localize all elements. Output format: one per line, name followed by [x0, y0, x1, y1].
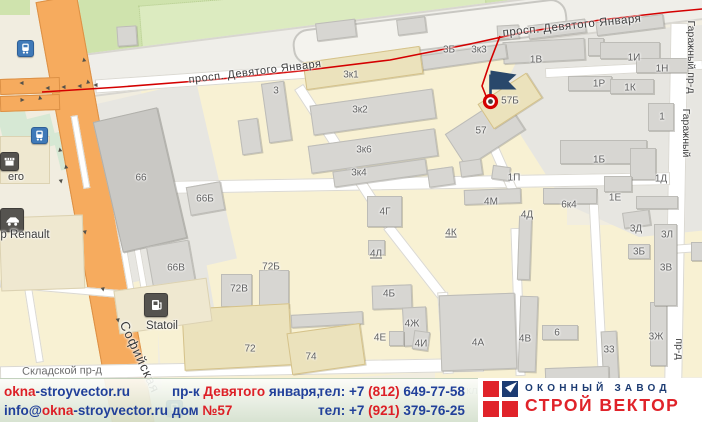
building [636, 196, 678, 209]
logo-text: ОКОННЫЙ ЗАВОД СТРОЙ ВЕКТОР [525, 382, 679, 415]
building-label: 1Е [609, 193, 621, 204]
building-label: 72В [230, 284, 248, 295]
text-segment: (812) [368, 384, 400, 399]
text-segment: дом [172, 403, 202, 418]
building-label: 3 [273, 86, 279, 97]
text-segment: 379-76-25 [400, 403, 465, 418]
building-label: 3к2 [352, 105, 368, 116]
lane-arrow-icon: ▲ [45, 85, 52, 92]
footer-bar: okna-stroyvector.ru info@okna-stroyvecto… [0, 378, 702, 422]
text-segment: okna [4, 384, 36, 399]
building [502, 38, 585, 64]
building-label: 3к6 [356, 145, 372, 156]
building-label: 1Р [593, 79, 605, 90]
street-label: Гаражный пр-д [685, 21, 697, 94]
building-label: 4И [415, 339, 428, 350]
building-label: 1К [624, 83, 635, 94]
text-segment: (921) [368, 403, 400, 418]
text-segment: okna [42, 403, 74, 418]
building-label: 1В [530, 55, 542, 66]
building-label: 4Е [374, 333, 386, 344]
street-label: р Renault [0, 229, 49, 241]
building-label: 1Н [656, 64, 669, 75]
text-segment: №57 [202, 403, 232, 418]
building-label: 4Б [383, 289, 395, 300]
building-label: 4К [445, 228, 456, 239]
street-label: Гаражный [680, 109, 692, 158]
site-link[interactable]: okna-stroyvector.ru [4, 382, 168, 401]
building-label: 1Б [593, 155, 605, 166]
building-label: 3к3 [471, 45, 487, 56]
logo-square-icon [502, 401, 518, 417]
building [691, 242, 702, 261]
building-label: 4М [484, 197, 498, 208]
building-label: 1Д [655, 174, 667, 185]
logo-square-icon [483, 381, 499, 397]
tram-icon [17, 40, 34, 57]
building [517, 216, 532, 280]
lane-arrow-icon: ▲ [62, 163, 70, 171]
lane-arrow-icon: ▲ [77, 83, 84, 90]
road-orange [0, 94, 60, 112]
building-label: 4А [472, 338, 484, 349]
lane-arrow-icon: ▲ [19, 80, 26, 87]
building-label: 4Л [370, 249, 382, 260]
building-label: 3Л [661, 230, 673, 241]
text-segment: января, [265, 384, 320, 399]
text-segment: -stroyvector.ru [73, 403, 168, 418]
lane-arrow-icon: ▲ [57, 177, 65, 185]
building-label: 4В [519, 334, 531, 345]
building [459, 159, 483, 178]
building-label: 74 [305, 352, 316, 363]
building-label: 66 [135, 173, 146, 184]
building-label: 3Б [443, 45, 455, 56]
text-segment: тел: +7 [318, 384, 368, 399]
phone-line-2: тел: +7 (921) 379-76-25 [318, 401, 465, 420]
building-label: 66Б [196, 194, 214, 205]
building-label: 3к1 [343, 70, 359, 81]
building-label: 4Ж [405, 319, 420, 330]
text-segment: -stroyvector.ru [36, 384, 131, 399]
building [439, 293, 518, 372]
footer-phones-column: тел: +7 (812) 649-77-58 тел: +7 (921) 37… [318, 382, 465, 420]
lane-arrow-icon: ▲ [81, 228, 89, 236]
logo-arrow-icon [502, 381, 518, 397]
address-line-2: дом №57 [172, 401, 320, 420]
text-segment: тел: +7 [318, 403, 368, 418]
street-label: Складской пр-д [22, 364, 102, 377]
phone-line-1: тел: +7 (812) 649-77-58 [318, 382, 465, 401]
building [568, 76, 612, 91]
building-label: 66В [167, 263, 185, 274]
building-label: 4Г [380, 207, 391, 218]
street-label: его [8, 171, 24, 183]
logo-square-icon [483, 401, 499, 417]
building-label: 3Б [633, 247, 645, 258]
building [604, 176, 632, 192]
text-segment: 649-77-58 [400, 384, 465, 399]
building-label: 3В [660, 263, 672, 274]
text-segment: info@ [4, 403, 42, 418]
lane-arrow-icon: ▲ [93, 82, 100, 89]
building-label: 57Б [501, 96, 519, 107]
building [389, 331, 404, 346]
building-label: 72Б [262, 262, 280, 273]
text-segment: пр-к [172, 384, 203, 399]
shop-icon [0, 152, 19, 171]
building-label: 6к4 [561, 200, 577, 211]
building-label: 3Ж [649, 332, 664, 343]
lane-arrow-icon: ▲ [56, 146, 64, 154]
building [630, 148, 656, 180]
logo-company-name: СТРОЙ ВЕКТОР [525, 396, 679, 415]
building-label: 6 [554, 328, 560, 339]
email-link[interactable]: info@okna-stroyvector.ru [4, 401, 168, 420]
text-segment: Девятого [203, 384, 265, 399]
street-label: Statoil [146, 320, 178, 332]
lane-arrow-icon: ▲ [99, 285, 107, 293]
building [116, 25, 137, 46]
lane-arrow-icon: ▲ [80, 56, 88, 64]
building-label: 33 [603, 345, 614, 356]
logo-squares-icon [483, 381, 521, 419]
address-line-1: пр-к Девятого января, [172, 382, 320, 401]
lane-arrow-icon: ▲ [19, 97, 26, 104]
map-canvas[interactable]: ▲▲▲▲▲▲▲▲▲▲▲▲▲▲▲ просп. Девятого Январяпр… [0, 0, 702, 422]
building-label: 4Д [521, 210, 533, 221]
building-label: 72 [244, 344, 255, 355]
company-logo: ОКОННЫЙ ЗАВОД СТРОЙ ВЕКТОР [478, 378, 702, 422]
building-label: 3Д [630, 224, 642, 235]
building-label: 57 [475, 126, 486, 137]
tram-icon [31, 127, 48, 144]
lane-arrow-icon: ▲ [61, 84, 68, 91]
footer-address-column: пр-к Девятого января, дом №57 [172, 382, 320, 420]
street-label: пр-д [673, 338, 685, 359]
building-label: 1П [508, 173, 521, 184]
fuel-icon [144, 293, 168, 317]
building [259, 270, 289, 308]
footer-links-column: okna-stroyvector.ru info@okna-stroyvecto… [4, 382, 168, 420]
building-label: 3к4 [351, 168, 367, 179]
footer-contact-panel: okna-stroyvector.ru info@okna-stroyvecto… [0, 378, 478, 422]
building-label: 1И [628, 53, 641, 64]
map-screenshot: ▲▲▲▲▲▲▲▲▲▲▲▲▲▲▲ просп. Девятого Январяпр… [0, 0, 702, 422]
logo-tagline: ОКОННЫЙ ЗАВОД [525, 382, 679, 396]
lane-arrow-icon: ▲ [36, 94, 44, 102]
map-zone-green [0, 0, 30, 15]
building-label: 1 [659, 112, 665, 123]
building [427, 166, 455, 187]
lane-arrow-icon: ▲ [84, 78, 92, 86]
